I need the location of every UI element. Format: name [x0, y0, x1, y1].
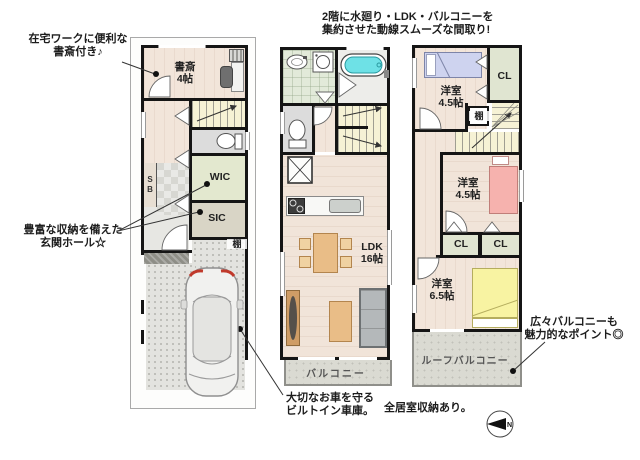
note-study-line1: 在宅ワークに便利な: [17, 33, 139, 46]
roof-balcony-label: ルーフバルコニー: [413, 352, 517, 367]
note-balcony-line1: 広々バルコニーも: [524, 316, 624, 329]
toilet-1f: [217, 134, 242, 150]
study-size: 4帖: [155, 73, 215, 85]
tv-screen: [289, 296, 297, 340]
bedroom1-name: 洋室: [421, 85, 481, 97]
washing-machine: [313, 52, 333, 72]
shelf-label-1f: 棚: [227, 239, 247, 249]
bedroom3-label: 洋室 6.5帖: [412, 278, 472, 302]
note-flow: 2階に水廻り・LDK・バルコニーを 集約させた動線スムーズな間取り!: [322, 11, 490, 37]
note-study: 在宅ワークに便利な 書斎付き♪: [17, 33, 139, 59]
blanket-line: [472, 300, 518, 316]
closet2-label: CL: [444, 238, 478, 250]
bedroom2-size: 4.5帖: [438, 189, 498, 201]
shelf-label-3f: 棚: [469, 111, 489, 121]
study-label: 書斎 4帖: [155, 61, 215, 85]
car: [181, 268, 243, 396]
note-storage: 豊富な収納を備えた 玄関ホール☆: [13, 224, 133, 250]
bedroom3-size: 6.5帖: [412, 290, 472, 302]
note-storage-line1: 豊富な収納を備えた: [13, 224, 133, 237]
note-flow-line1: 2階に水廻り・LDK・バルコニーを: [322, 11, 490, 24]
blanket-line: [437, 52, 450, 78]
balcony-label: バルコニー: [286, 365, 386, 380]
study-name: 書斎: [155, 61, 215, 73]
door-swings-2f: [314, 73, 356, 125]
note-storage-line2: 玄関ホール☆: [13, 237, 133, 250]
note-balcony-line2: 魅力的なポイント◎: [524, 329, 624, 342]
note-balcony: 広々バルコニーも 魅力的なポイント◎: [524, 316, 624, 342]
stove-burners: [290, 200, 303, 212]
sic-label: SIC: [196, 212, 238, 224]
ldk-size: 16帖: [351, 253, 393, 265]
closet1-label: CL: [491, 70, 518, 82]
bedroom2-name: 洋室: [438, 177, 498, 189]
refrigerator-space: [288, 157, 312, 183]
bedroom2-label: 洋室 4.5帖: [438, 177, 498, 201]
wic-label: WIC: [198, 171, 242, 183]
bedroom3-name: 洋室: [412, 278, 472, 290]
ldk-name: LDK: [351, 241, 393, 253]
svg-text:N: N: [507, 422, 512, 429]
note-study-line2: 書斎付き♪: [17, 46, 139, 59]
note-flow-line2: 集約させた動線スムーズな間取り!: [322, 24, 490, 37]
floorplan-canvas: SB: [0, 0, 640, 460]
stairs-fan: [492, 103, 519, 127]
ldk-label: LDK 16帖: [351, 241, 393, 265]
washbasin: [287, 55, 307, 69]
stairs-arrows: [197, 106, 511, 148]
bedroom1-size: 4.5帖: [421, 97, 481, 109]
closet3-label: CL: [483, 238, 518, 250]
door-swings-1f: [149, 76, 189, 250]
bathtub: [341, 54, 389, 78]
note-all-rooms: 全居室収納あり。: [384, 402, 504, 415]
bedroom1-label: 洋室 4.5帖: [421, 85, 481, 109]
toilet-2f: [289, 120, 306, 148]
